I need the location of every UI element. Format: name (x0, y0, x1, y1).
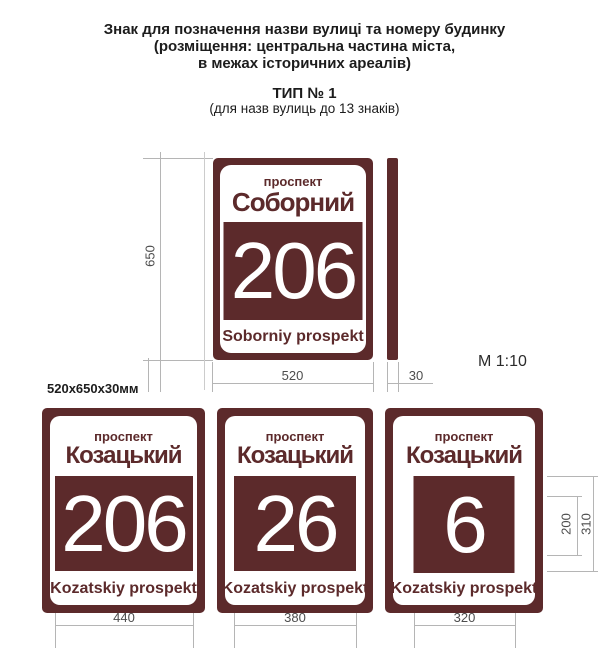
dim-200-line (577, 496, 578, 555)
dim-30-ext-left (387, 362, 388, 392)
bottom-sign-26-house-number: 26 (254, 484, 337, 564)
bottom-sign-6: проспект Козацький 6 Kozatskiy prospekt (385, 408, 543, 613)
dim-380-line (234, 625, 356, 626)
dim-200-ext-bottom (547, 555, 582, 556)
dim-520-line (212, 383, 373, 384)
dim-520-label: 520 (212, 368, 373, 383)
scale-label: М 1:10 (478, 353, 527, 371)
drawing-title-line2: (розміщення: центральна частина міста, (0, 38, 609, 55)
main-sign-number-plate: 206 (224, 222, 363, 320)
dim-520-ext-right (373, 362, 374, 392)
bottom-sign-6-number-plate: 6 (414, 476, 515, 573)
drawing-canvas: Знак для позначення назви вулиці та номе… (0, 0, 609, 657)
bottom-sign-6-house-number: 6 (443, 485, 485, 565)
dim-310-ext-bottom (547, 571, 598, 572)
bottom-sign-6-street-name: Козацький (385, 442, 543, 470)
main-sign-front-view: проспект Соборний 206 Soborniy prospekt (213, 158, 373, 360)
dim-650-label: 650 (143, 245, 158, 267)
bottom-sign-6-transliteration: Kozatskiy prospekt (385, 580, 543, 598)
bottom-sign-206: проспект Козацький 206 Kozatskiy prospek… (42, 408, 205, 613)
dim-650-ext-bottom (143, 360, 213, 361)
drawing-title-line1: Знак для позначення назви вулиці та номе… (0, 21, 609, 38)
size-label: 520х650х30мм (47, 381, 139, 396)
dim-380-ext-right (356, 613, 357, 648)
dim-650-ext-stub (148, 358, 149, 392)
bottom-sign-26-street-name: Козацький (217, 442, 373, 470)
bottom-sign-206-house-number: 206 (61, 484, 185, 564)
main-sign-transliteration: Soborniy prospekt (213, 328, 373, 346)
main-sign-guide-line (204, 152, 205, 390)
bottom-sign-206-number-plate: 206 (55, 476, 193, 571)
dim-310-label: 310 (579, 513, 594, 535)
sign-type-label: ТИП № 1 (0, 85, 609, 102)
dim-30-line (387, 383, 433, 384)
main-sign-side-view (387, 158, 398, 360)
bottom-sign-26-transliteration: Kozatskiy prospekt (217, 580, 373, 598)
dim-440-ext-right (193, 613, 194, 648)
dim-200-label: 200 (559, 513, 574, 535)
dim-650-ext-top (143, 158, 213, 159)
dim-650-line (160, 152, 161, 392)
sign-type-note: (для назв вулиць до 13 знаків) (0, 101, 609, 116)
bottom-sign-206-transliteration: Kozatskiy prospekt (42, 580, 205, 598)
bottom-sign-206-street-name: Козацький (42, 442, 205, 470)
dim-380-label: 380 (234, 610, 356, 625)
dim-320-line (414, 625, 515, 626)
dim-320-ext-right (515, 613, 516, 648)
main-sign-house-number: 206 (231, 231, 355, 311)
dim-30-label: 30 (396, 368, 436, 383)
dim-440-line (55, 625, 193, 626)
dim-320-label: 320 (414, 610, 515, 625)
dim-310-ext-top (547, 476, 598, 477)
dim-440-label: 440 (55, 610, 193, 625)
bottom-sign-26-number-plate: 26 (234, 476, 356, 571)
drawing-title-line3: в межах історичних ареалів) (0, 55, 609, 72)
main-sign-street-name: Соборний (213, 187, 373, 218)
bottom-sign-26: проспект Козацький 26 Kozatskiy prospekt (217, 408, 373, 613)
